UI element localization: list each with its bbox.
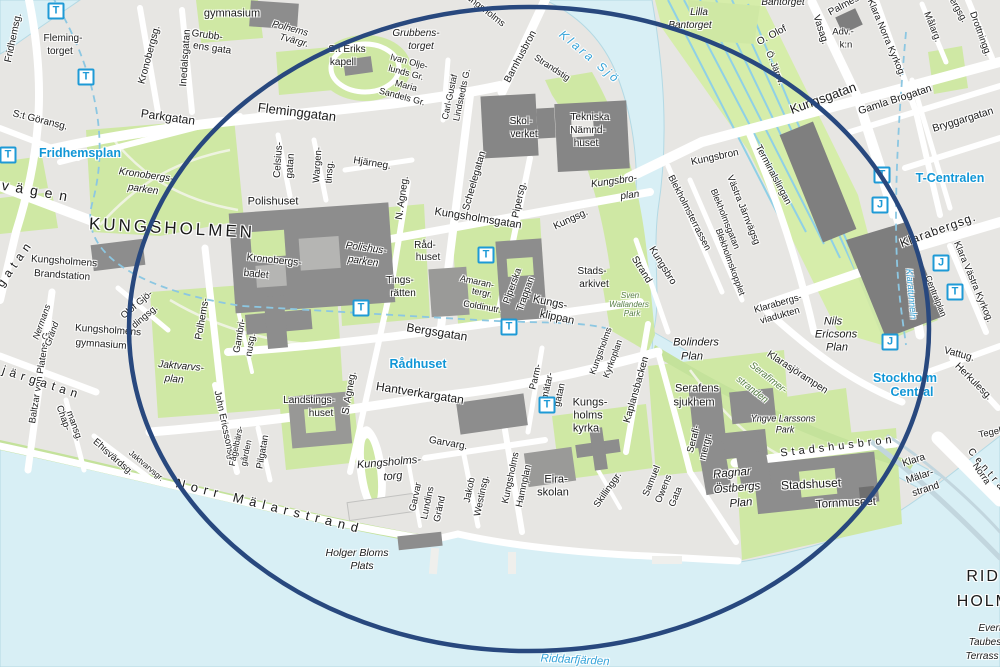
map-base [0, 0, 1000, 667]
map-canvas: KUNGSHOLMENRIDDARHOLMENKlara SjöRiddarfj… [0, 0, 1000, 667]
